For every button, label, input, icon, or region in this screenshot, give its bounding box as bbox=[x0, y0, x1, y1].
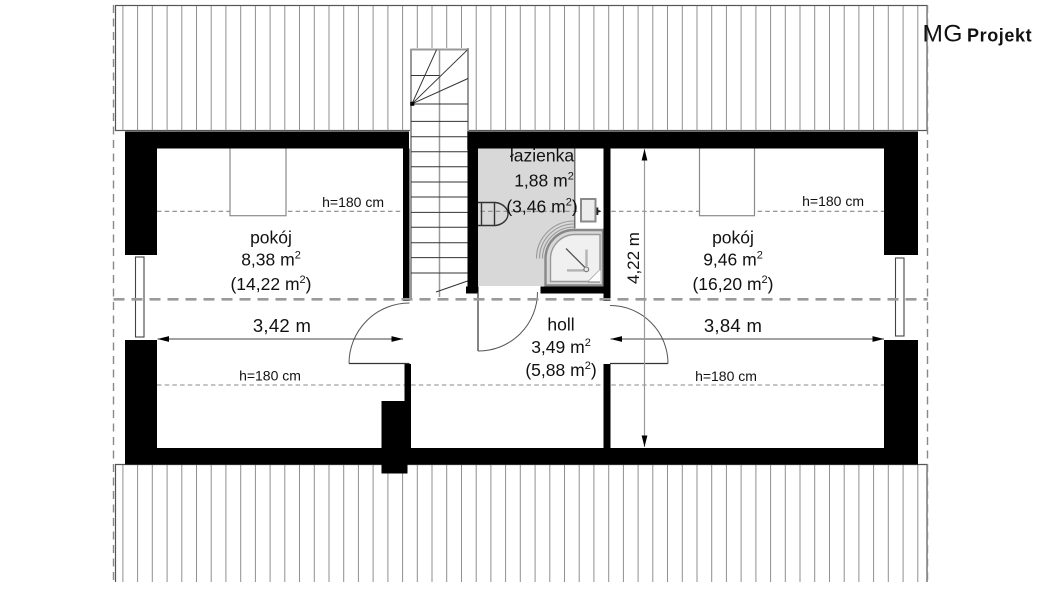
svg-text:h=180 cm: h=180 cm bbox=[695, 368, 757, 384]
svg-text:(14,22 m2): (14,22 m2) bbox=[230, 274, 311, 294]
svg-text:holl: holl bbox=[547, 315, 574, 335]
svg-text:MG: MG bbox=[923, 21, 963, 48]
svg-text:łazienka: łazienka bbox=[510, 146, 574, 166]
svg-text:3,84 m: 3,84 m bbox=[704, 315, 762, 336]
svg-text:1,88 m2: 1,88 m2 bbox=[514, 171, 574, 191]
svg-text:Projekt: Projekt bbox=[967, 26, 1032, 46]
svg-text:9,46 m2: 9,46 m2 bbox=[703, 250, 763, 270]
svg-text:3,49 m2: 3,49 m2 bbox=[531, 337, 591, 357]
svg-text:pokój: pokój bbox=[712, 228, 754, 248]
svg-text:h=180 cm: h=180 cm bbox=[802, 193, 864, 209]
svg-text:h=180 cm: h=180 cm bbox=[239, 368, 301, 384]
svg-text:4,22 m: 4,22 m bbox=[624, 232, 643, 284]
svg-text:h=180 cm: h=180 cm bbox=[322, 194, 384, 210]
svg-text:(16,20 m2): (16,20 m2) bbox=[692, 274, 773, 294]
svg-text:8,38 m2: 8,38 m2 bbox=[241, 250, 301, 270]
svg-text:pokój: pokój bbox=[250, 228, 292, 248]
svg-text:3,42 m: 3,42 m bbox=[253, 315, 311, 336]
